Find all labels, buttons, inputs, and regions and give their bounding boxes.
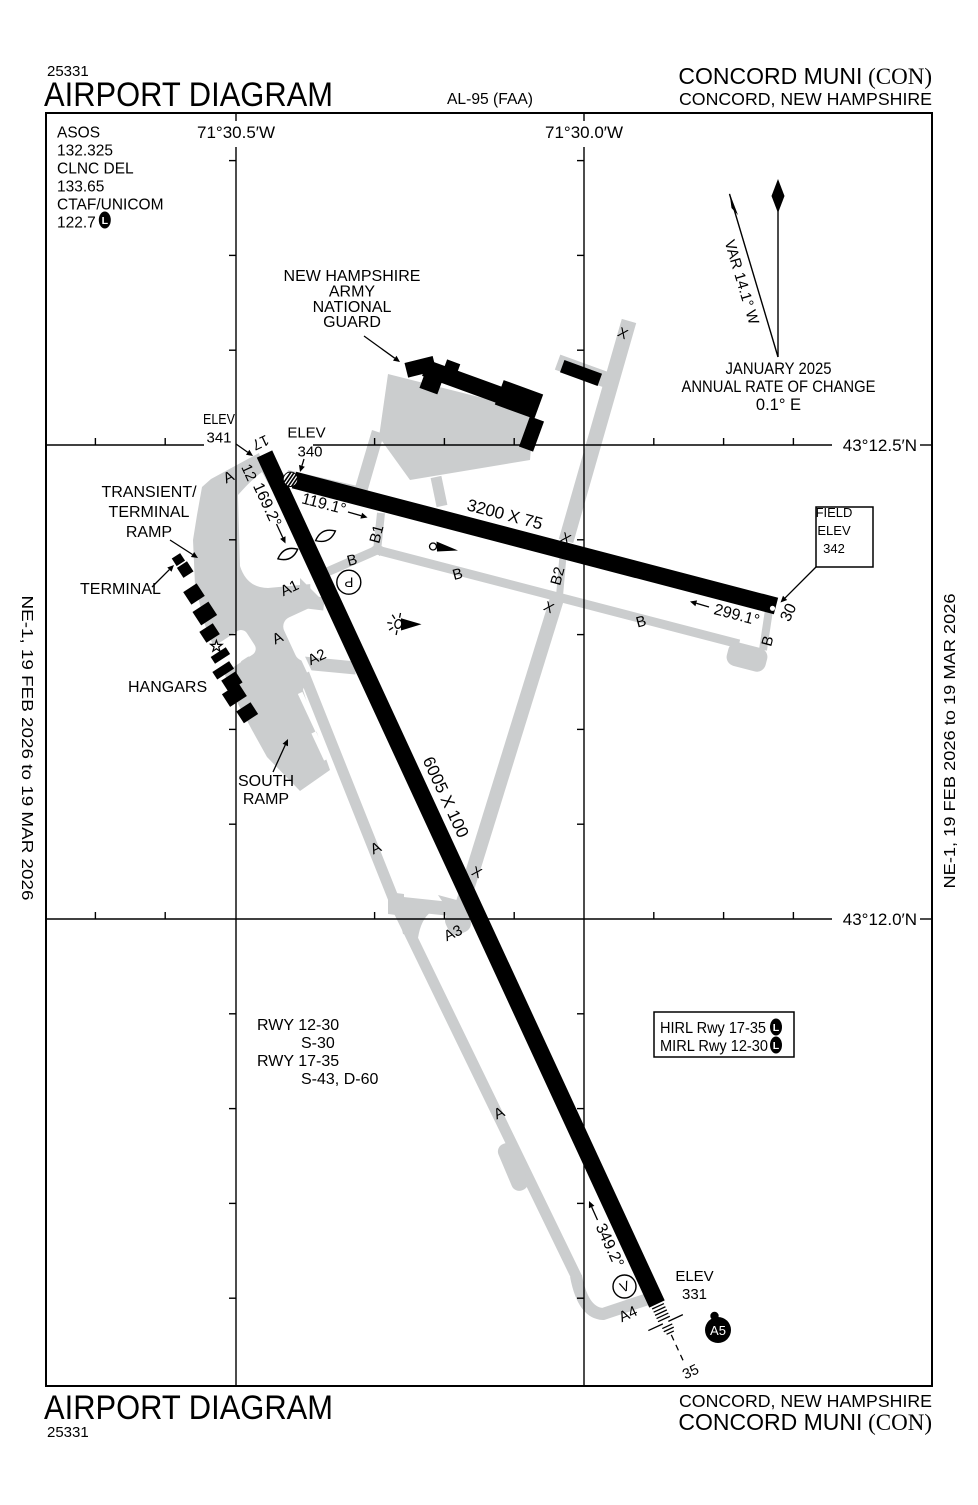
svg-text:RAMP: RAMP	[126, 524, 172, 541]
svg-text:ELEV: ELEV	[675, 1268, 713, 1285]
svg-text:340: 340	[297, 444, 322, 461]
svg-text:CONCORD MUNI (CON): CONCORD MUNI (CON)	[678, 1409, 932, 1435]
svg-text:P: P	[344, 574, 353, 589]
svg-text:L: L	[102, 215, 109, 227]
svg-text:A5: A5	[710, 1323, 726, 1338]
svg-text:CLNC DEL: CLNC DEL	[57, 161, 134, 178]
svg-text:331: 331	[682, 1286, 707, 1303]
svg-text:AIRPORT DIAGRAM: AIRPORT DIAGRAM	[44, 1389, 333, 1427]
svg-text:132.325: 132.325	[57, 143, 113, 160]
svg-text:341: 341	[206, 430, 231, 447]
svg-text:342: 342	[823, 541, 845, 556]
svg-text:ANNUAL RATE OF CHANGE: ANNUAL RATE OF CHANGE	[682, 378, 876, 396]
svg-text:NE-1, 19 FEB 2026 to 19 MAR: NE-1, 19 FEB 2026 to 19 MAR 2026	[942, 593, 959, 888]
svg-text:43°12.5′N: 43°12.5′N	[843, 436, 917, 455]
svg-text:133.65: 133.65	[57, 179, 104, 196]
svg-text:RWY 12-30: RWY 12-30	[257, 1017, 339, 1034]
svg-text:TERMINAL: TERMINAL	[80, 581, 161, 598]
svg-text:ELEV: ELEV	[287, 425, 325, 442]
svg-text:L: L	[773, 1040, 780, 1052]
svg-text:25331: 25331	[47, 1424, 89, 1441]
svg-text:0.1° E: 0.1° E	[756, 396, 801, 414]
svg-text:ELEV: ELEV	[817, 523, 851, 538]
svg-text:TRANSIENT/: TRANSIENT/	[101, 484, 197, 501]
svg-text:AIRPORT DIAGRAM: AIRPORT DIAGRAM	[44, 76, 333, 114]
svg-text:CONCORD, NEW HAMPSHIRE: CONCORD, NEW HAMPSHIRE	[679, 89, 932, 109]
svg-text:RAMP: RAMP	[243, 791, 289, 808]
svg-text:L: L	[773, 1022, 780, 1034]
svg-text:JANUARY 2025: JANUARY 2025	[726, 360, 832, 378]
svg-text:MIRL Rwy 12-30: MIRL Rwy 12-30	[660, 1038, 768, 1055]
svg-text:ASOS: ASOS	[57, 125, 100, 142]
svg-text:S-43, D-60: S-43, D-60	[301, 1071, 378, 1088]
svg-text:RWY 17-35: RWY 17-35	[257, 1053, 339, 1070]
svg-text:TERMINAL: TERMINAL	[109, 504, 190, 521]
svg-text:CONCORD, NEW HAMPSHIRE: CONCORD, NEW HAMPSHIRE	[679, 1391, 932, 1411]
svg-text:ELEV: ELEV	[203, 411, 235, 428]
svg-text:SOUTH: SOUTH	[238, 773, 294, 790]
svg-text:71°30.5′W: 71°30.5′W	[197, 123, 275, 142]
svg-text:CONCORD MUNI (CON): CONCORD MUNI (CON)	[678, 63, 932, 89]
svg-text:FIELD: FIELD	[816, 505, 853, 520]
svg-text:S-30: S-30	[301, 1035, 335, 1052]
svg-text:CTAF/UNICOM: CTAF/UNICOM	[57, 197, 163, 214]
svg-text:43°12.0′N: 43°12.0′N	[843, 910, 917, 929]
svg-text:AL-95 (FAA): AL-95 (FAA)	[447, 91, 533, 108]
svg-text:HANGARS: HANGARS	[128, 679, 207, 696]
svg-text:122.7: 122.7	[57, 215, 96, 232]
svg-text:GUARD: GUARD	[323, 314, 381, 331]
svg-text:NE-1, 19 FEB 2026 to 19 MAR: NE-1, 19 FEB 2026 to 19 MAR 2026	[18, 596, 35, 901]
svg-text:HIRL Rwy 17-35: HIRL Rwy 17-35	[660, 1020, 766, 1037]
svg-text:71°30.0′W: 71°30.0′W	[545, 123, 623, 142]
